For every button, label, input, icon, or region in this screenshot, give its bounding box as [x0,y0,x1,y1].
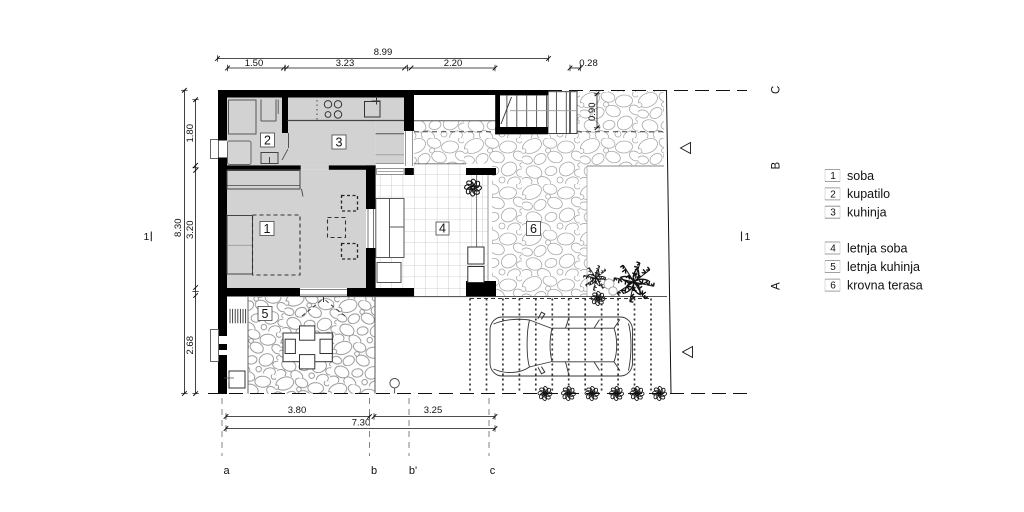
svg-text:4: 4 [830,244,836,255]
svg-text:a: a [223,465,230,477]
svg-text:3: 3 [830,208,836,219]
svg-text:8.99: 8.99 [374,47,393,58]
svg-text:1.50: 1.50 [245,58,264,69]
svg-text:4: 4 [439,222,446,236]
svg-text:5: 5 [262,307,269,321]
svg-text:3.80: 3.80 [288,405,307,416]
svg-text:5: 5 [830,262,836,273]
svg-text:6: 6 [830,281,836,292]
svg-text:3.20: 3.20 [185,221,196,240]
svg-text:3.23: 3.23 [336,58,355,69]
svg-text:c: c [490,465,496,477]
svg-text:kupatilo: kupatilo [847,187,890,201]
svg-text:A: A [771,282,783,290]
svg-text:0.90: 0.90 [587,103,598,122]
svg-text:1: 1 [144,231,150,243]
svg-text:krovna terasa: krovna terasa [847,278,923,292]
svg-text:letnja kuhinja: letnja kuhinja [847,260,920,274]
svg-text:1: 1 [830,171,836,182]
svg-text:8.30: 8.30 [173,219,184,238]
svg-text:0.28: 0.28 [579,58,598,69]
svg-text:1.80: 1.80 [185,124,196,143]
svg-text:3: 3 [336,136,343,150]
svg-text:7.30: 7.30 [352,418,371,429]
svg-text:3.25: 3.25 [424,405,443,416]
svg-text:2: 2 [830,189,836,200]
svg-text:kuhinja: kuhinja [847,206,887,220]
svg-text:B: B [771,162,783,170]
svg-text:soba: soba [847,169,874,183]
svg-text:2: 2 [264,134,271,148]
svg-text:1: 1 [745,231,751,243]
svg-text:b: b [371,465,377,477]
svg-text:2.20: 2.20 [444,58,463,69]
svg-text:6: 6 [530,222,537,236]
svg-text:letnja soba: letnja soba [847,241,908,255]
svg-text:1: 1 [264,222,271,236]
svg-text:2.68: 2.68 [185,336,196,355]
svg-text:C: C [771,86,783,94]
svg-text:b': b' [409,465,417,477]
